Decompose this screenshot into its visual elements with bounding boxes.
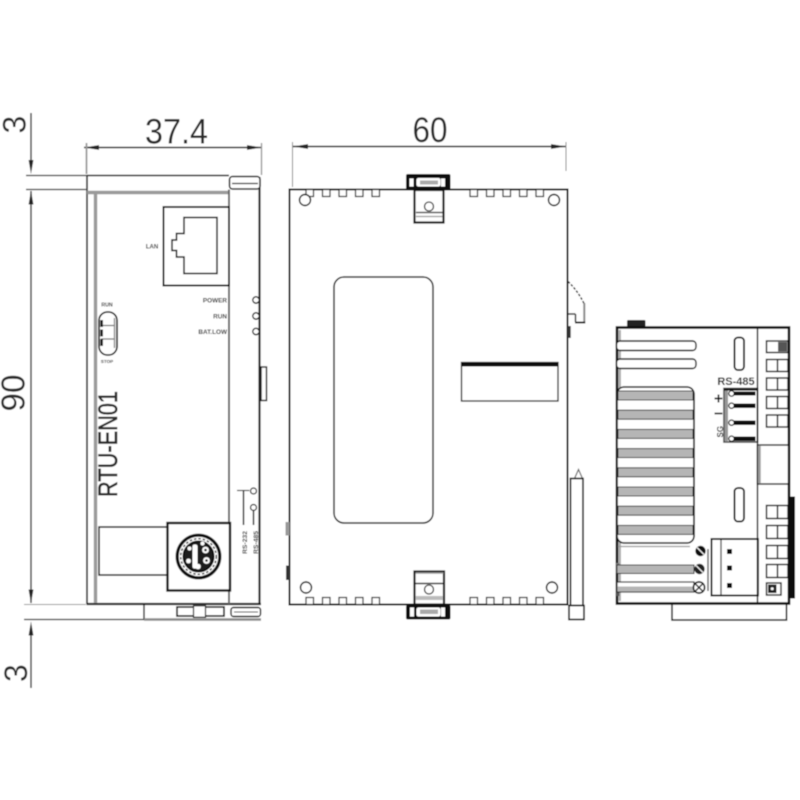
svg-text:RUN: RUN xyxy=(101,303,112,309)
svg-text:RS-485: RS-485 xyxy=(253,531,260,554)
svg-text:RUN: RUN xyxy=(213,314,227,321)
svg-text:RS-232: RS-232 xyxy=(242,531,249,554)
svg-text:STOP: STOP xyxy=(101,359,113,364)
svg-text:POWER: POWER xyxy=(203,298,228,305)
svg-text:3: 3 xyxy=(0,116,33,134)
svg-text:90: 90 xyxy=(0,375,32,412)
svg-text:BAT.LOW: BAT.LOW xyxy=(198,329,228,336)
svg-text:60: 60 xyxy=(413,111,448,150)
svg-text:SG: SG xyxy=(716,426,725,438)
svg-text:LAN: LAN xyxy=(146,245,158,251)
svg-text:RTU-EN01: RTU-EN01 xyxy=(93,391,123,497)
svg-text:RS-485: RS-485 xyxy=(717,376,754,388)
svg-text:37.4: 37.4 xyxy=(145,113,208,152)
svg-text:3: 3 xyxy=(0,664,34,682)
